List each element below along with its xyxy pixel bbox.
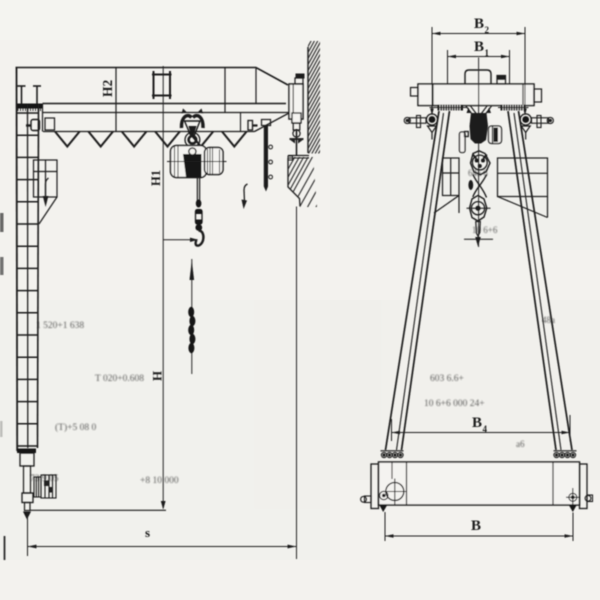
svg-text:B: B [472,415,482,431]
svg-text:B: B [471,518,481,534]
svg-text:s: s [145,525,150,540]
svg-text:10 6+6 000 24+: 10 6+6 000 24+ [424,399,485,409]
svg-text:B: B [474,39,484,55]
svg-text:B: B [474,16,484,32]
svg-text:H2: H2 [100,79,115,97]
svg-text:(T)+5 08 0: (T)+5 08 0 [55,422,96,433]
svg-text:a6: a6 [516,439,525,449]
svg-text:1 520+1 638: 1 520+1 638 [36,321,84,331]
svg-text:1: 1 [485,48,490,58]
svg-text:H: H [150,371,165,381]
svg-text:H1: H1 [149,170,163,186]
svg-text:+8 10 000: +8 10 000 [140,476,179,486]
svg-text:T 020+0.608: T 020+0.608 [95,374,144,384]
svg-text:2: 2 [485,25,490,35]
svg-text:48a: 48a [542,315,555,325]
svg-text:603 6.6+: 603 6.6+ [430,374,464,384]
svg-text:4: 4 [483,424,488,434]
